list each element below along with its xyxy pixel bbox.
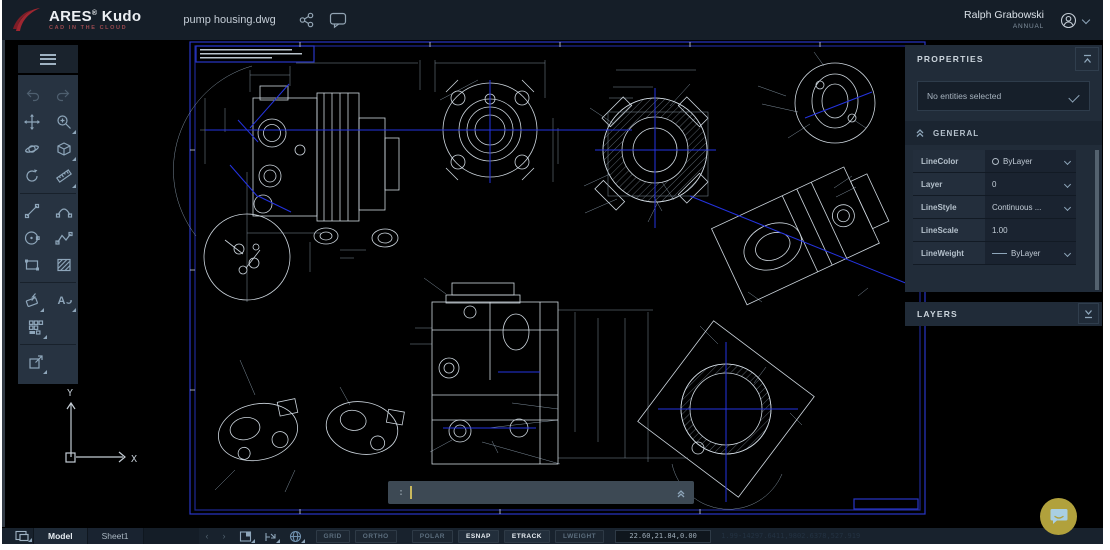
chat-bubble-icon xyxy=(1049,507,1069,526)
app-window: ARES® Kudo CAD IN THE CLOUD pump housing… xyxy=(2,0,1103,544)
toolbar-divider xyxy=(20,344,76,345)
ruler-icon xyxy=(55,167,73,185)
redo-button[interactable] xyxy=(52,83,77,108)
hatch-icon xyxy=(55,256,73,274)
chevron-down-icon xyxy=(1064,157,1071,164)
entity-selector-value: No entities selected xyxy=(918,91,1001,101)
document-title: pump housing.dwg xyxy=(183,14,275,26)
toggle-grid[interactable]: GRID xyxy=(316,530,350,543)
modify-icon xyxy=(23,291,41,309)
text-tool-button[interactable]: A xyxy=(52,288,77,313)
arc-icon xyxy=(55,202,73,220)
collapse-panel-button[interactable] xyxy=(1075,47,1099,71)
avatar-icon xyxy=(1060,12,1077,29)
chevron-down-icon xyxy=(1064,180,1071,187)
property-label: Layer xyxy=(913,173,985,195)
coordinates-readout: 22.60,21.84,0.00 xyxy=(615,530,711,543)
prev-sheet-button[interactable]: ‹ xyxy=(206,531,209,541)
expand-down-icon xyxy=(1083,308,1094,319)
layer-dropdown[interactable]: 0 xyxy=(985,173,1076,195)
drafting-settings-icon xyxy=(264,530,277,543)
polyline-icon xyxy=(55,229,73,247)
layers-header: LAYERS xyxy=(905,302,1102,326)
views-cube-icon xyxy=(55,140,73,158)
ucs-indicator: Y X xyxy=(55,385,150,475)
chevron-down-icon xyxy=(1064,203,1071,210)
toolbar-divider xyxy=(20,282,76,283)
blocks-icon xyxy=(27,318,45,336)
top-bar: ARES® Kudo CAD IN THE CLOUD pump housing… xyxy=(2,0,1103,40)
arc-tool-button[interactable] xyxy=(52,199,77,224)
chevron-down-icon xyxy=(1068,91,1079,102)
brand-block: ARES® Kudo CAD IN THE CLOUD xyxy=(49,9,141,32)
globe-icon xyxy=(289,530,302,543)
command-bar[interactable]: : xyxy=(388,481,694,504)
left-toolbar: A xyxy=(18,45,78,384)
chevron-up-double-icon xyxy=(676,488,686,498)
lineweight-dropdown[interactable]: ByLayer xyxy=(985,242,1076,264)
tab-spacer xyxy=(144,528,199,544)
toggle-polar[interactable]: POLAR xyxy=(412,530,453,543)
export-tool-button[interactable] xyxy=(23,350,48,375)
rectangle-tool-button[interactable] xyxy=(20,253,45,278)
linecolor-dropdown[interactable]: ByLayer xyxy=(985,150,1076,172)
property-value: ByLayer xyxy=(1011,249,1040,258)
toggle-esnap[interactable]: ESNAP xyxy=(458,530,499,543)
entity-selector-dropdown[interactable]: No entities selected xyxy=(917,81,1090,111)
pan-icon xyxy=(23,113,41,131)
lineweight-sample-icon xyxy=(992,253,1007,254)
toolbar-body: A xyxy=(18,75,78,384)
hamburger-icon xyxy=(40,54,56,56)
layers-panel: LAYERS xyxy=(905,302,1102,326)
property-row-linecolor: LineColor ByLayer xyxy=(913,150,1076,173)
toggle-ortho[interactable]: ORTHO xyxy=(355,530,397,543)
property-value: ByLayer xyxy=(1003,157,1032,166)
orbit-button[interactable] xyxy=(20,137,45,162)
modelspace-icon xyxy=(15,530,30,542)
properties-table: LineColor ByLayer Layer 0 LineStyle xyxy=(913,150,1076,265)
share-icon xyxy=(298,11,315,29)
command-prompt: : xyxy=(398,487,404,498)
redo-icon xyxy=(55,86,73,104)
text-icon: A xyxy=(55,291,73,309)
user-plan-badge: ANNUAL xyxy=(964,23,1044,31)
property-row-layer: Layer 0 xyxy=(913,173,1076,196)
undo-button[interactable] xyxy=(20,83,45,108)
toolbar-divider xyxy=(20,193,76,194)
general-section-header[interactable]: GENERAL xyxy=(905,121,1102,145)
blocks-tool-button[interactable] xyxy=(23,315,48,340)
circle-tool-button[interactable] xyxy=(20,226,45,251)
language-button[interactable] xyxy=(285,529,306,544)
tab-model[interactable]: Model xyxy=(33,528,88,544)
toggle-lweight[interactable]: LWEIGHT xyxy=(555,530,604,543)
status-bar: Model Sheet1 ‹ › GRID ORTHO POLAR ESNAP … xyxy=(2,527,1103,544)
sheet-options-button[interactable] xyxy=(235,529,256,544)
property-row-lineweight: LineWeight ByLayer xyxy=(913,242,1076,265)
general-section-label: GENERAL xyxy=(933,129,979,138)
linescale-field[interactable]: 1.00 xyxy=(985,219,1076,241)
drafting-settings-button[interactable] xyxy=(260,529,281,544)
properties-title: PROPERTIES xyxy=(905,54,984,64)
centerlines xyxy=(205,80,908,502)
color-swatch-icon xyxy=(992,158,999,165)
hatch-tool-button[interactable] xyxy=(52,253,77,278)
workspace-switch-button[interactable] xyxy=(11,529,33,543)
orbit-icon xyxy=(23,140,41,158)
sheet-options-icon xyxy=(239,530,252,543)
pan-button[interactable] xyxy=(20,110,45,135)
chat-fab-button[interactable] xyxy=(1040,498,1077,535)
rotate-view-button[interactable] xyxy=(20,164,45,189)
ares-logo-icon xyxy=(12,7,42,33)
brand-tagline: CAD IN THE CLOUD xyxy=(49,26,141,32)
drawing-geometry xyxy=(204,63,896,497)
properties-header: PROPERTIES xyxy=(905,45,1102,73)
chevron-down-icon xyxy=(1082,16,1090,24)
property-value: 1.00 xyxy=(992,226,1008,235)
linestyle-dropdown[interactable]: Continuous ... xyxy=(985,196,1076,218)
share-button[interactable] xyxy=(298,11,315,29)
property-value: Continuous ... xyxy=(992,203,1041,212)
comment-icon xyxy=(329,11,347,29)
user-menu[interactable] xyxy=(1060,12,1093,29)
notes-block xyxy=(200,49,302,59)
property-label: LineScale xyxy=(913,219,985,241)
next-sheet-button[interactable]: › xyxy=(223,531,226,541)
command-collapse-button[interactable] xyxy=(676,488,686,498)
comment-button[interactable] xyxy=(329,11,347,29)
properties-scrollbar[interactable] xyxy=(1095,150,1099,290)
ucs-x-label: X xyxy=(131,454,137,465)
command-cursor xyxy=(410,486,412,499)
brand-name: ARES® Kudo xyxy=(49,9,141,24)
rectangle-icon xyxy=(23,256,41,274)
zoom-icon xyxy=(55,113,73,131)
collapse-up-icon xyxy=(1082,54,1093,65)
svg-text:A: A xyxy=(58,295,66,307)
property-row-linestyle: LineStyle Continuous ... xyxy=(913,196,1076,219)
circle-icon xyxy=(23,229,41,247)
user-name: Ralph Grabowski xyxy=(964,9,1044,22)
property-value: 0 xyxy=(992,180,996,189)
main-area: Y X xyxy=(2,40,1103,527)
measure-button[interactable] xyxy=(52,164,77,189)
line-icon xyxy=(23,202,41,220)
undo-icon xyxy=(23,86,41,104)
ucs-y-label: Y xyxy=(67,388,73,399)
rotate-icon xyxy=(23,167,41,185)
tab-sheet1[interactable]: Sheet1 xyxy=(88,528,144,544)
zoom-button[interactable] xyxy=(52,110,77,135)
chevron-down-icon xyxy=(1064,249,1071,256)
polyline-tool-button[interactable] xyxy=(52,226,77,251)
user-info: Ralph Grabowski ANNUAL xyxy=(964,9,1044,30)
property-row-linescale: LineScale 1.00 xyxy=(913,219,1076,242)
property-label: LineStyle xyxy=(913,196,985,218)
toggle-etrack[interactable]: ETRACK xyxy=(504,530,550,543)
property-label: LineWeight xyxy=(913,242,985,264)
line-tool-button[interactable] xyxy=(20,199,45,224)
main-menu-button[interactable] xyxy=(18,45,78,73)
named-views-button[interactable] xyxy=(52,137,77,162)
layers-title: LAYERS xyxy=(905,309,958,319)
property-label: LineColor xyxy=(913,150,985,172)
modify-tool-button[interactable] xyxy=(20,288,45,313)
properties-panel: PROPERTIES No entities selected GENERAL … xyxy=(905,45,1102,292)
left-edge-strip xyxy=(2,40,5,527)
section-collapse-icon xyxy=(915,128,925,138)
sheet-border xyxy=(190,42,925,514)
export-icon xyxy=(27,353,45,371)
expand-panel-button[interactable] xyxy=(1078,303,1099,324)
session-info: 1.99-14297.6411,9802.6378,527.919 xyxy=(721,532,860,540)
